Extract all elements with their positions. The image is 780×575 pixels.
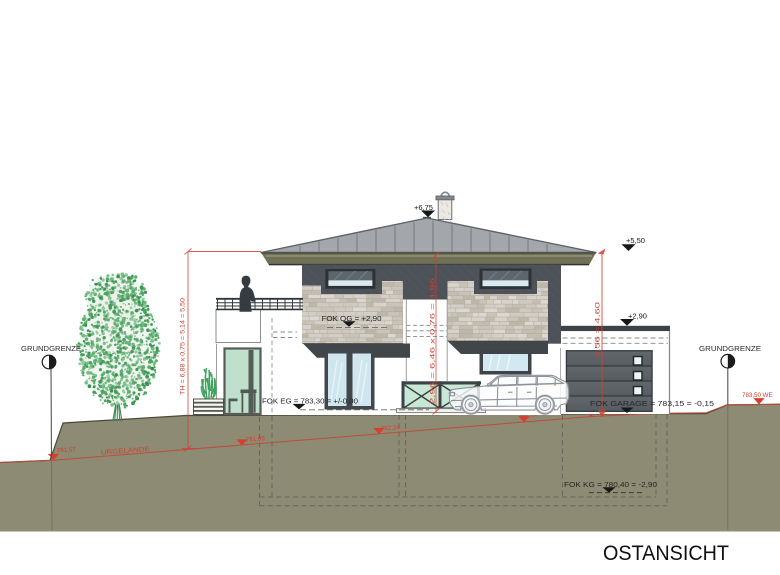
svg-text:782,24: 782,24 — [381, 424, 401, 432]
svg-text:783,50 WE: 783,50 WE — [742, 392, 773, 399]
svg-text:GRUNDGRENZE: GRUNDGRENZE — [699, 344, 761, 353]
svg-text:OSTANSICHT: OSTANSICHT — [603, 542, 729, 565]
svg-text:2,96 = 6,46 x 0,76 = 4,86: 2,96 = 6,46 x 0,76 = 4,86 — [430, 277, 437, 404]
svg-text:4,56 = 4,60: 4,56 = 4,60 — [595, 301, 602, 358]
svg-text:FOK GARAGE = 783,15 = -0,15: FOK GARAGE = 783,15 = -0,15 — [590, 399, 714, 408]
svg-text:TH = 6,88 x 0,75 = 5,14 = 5,50: TH = 6,88 x 0,75 = 5,14 = 5,50 — [180, 297, 187, 395]
svg-text:781,57: 781,57 — [57, 446, 77, 454]
svg-text:+5,50: +5,50 — [626, 236, 645, 245]
svg-text:781,95: 781,95 — [246, 435, 266, 443]
svg-text:FOK EG = 783,30 = +/-0,00: FOK EG = 783,30 = +/-0,00 — [262, 397, 358, 406]
svg-text:GRUNDGRENZE: GRUNDGRENZE — [21, 344, 81, 353]
